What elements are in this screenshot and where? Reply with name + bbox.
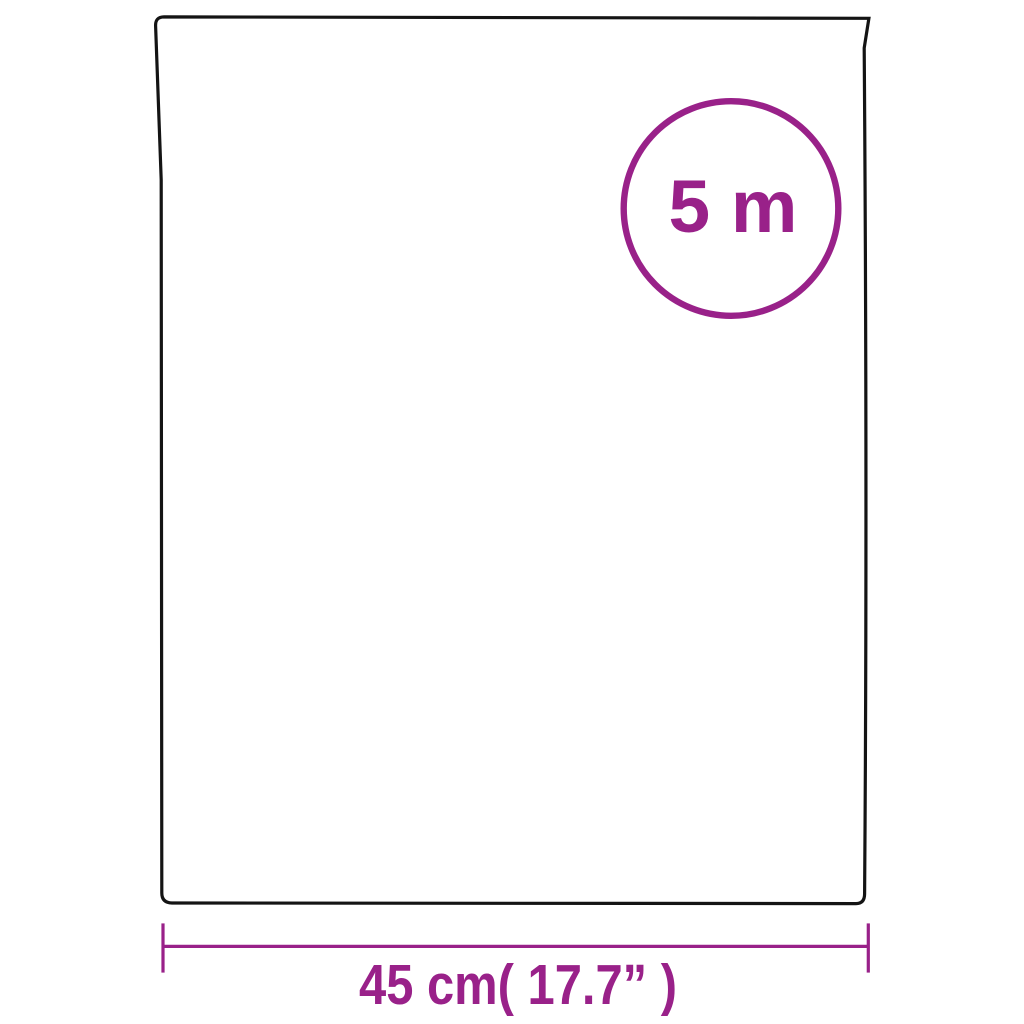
svg-text:45 cm( 17.7” ): 45 cm( 17.7” ) xyxy=(359,953,677,1017)
svg-text:5 m: 5 m xyxy=(669,165,798,248)
